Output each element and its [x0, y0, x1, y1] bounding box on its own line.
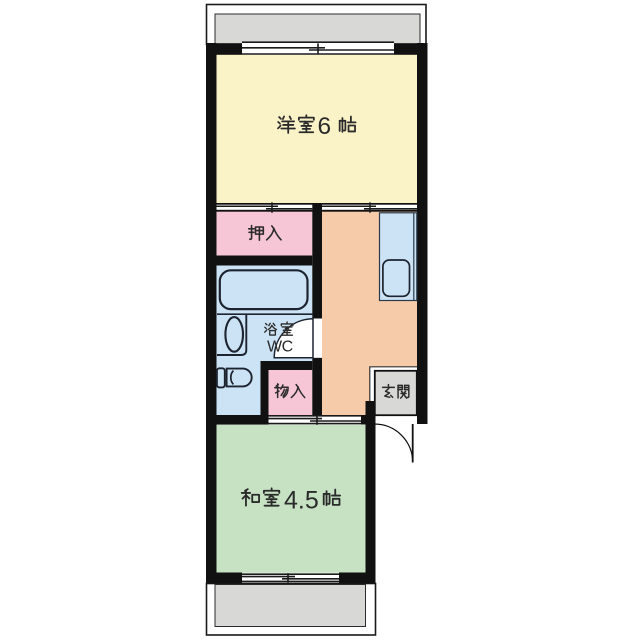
svg-text:4.5: 4.5 — [284, 487, 319, 515]
svg-text:6: 6 — [318, 113, 332, 140]
svg-text:WC: WC — [267, 339, 293, 356]
